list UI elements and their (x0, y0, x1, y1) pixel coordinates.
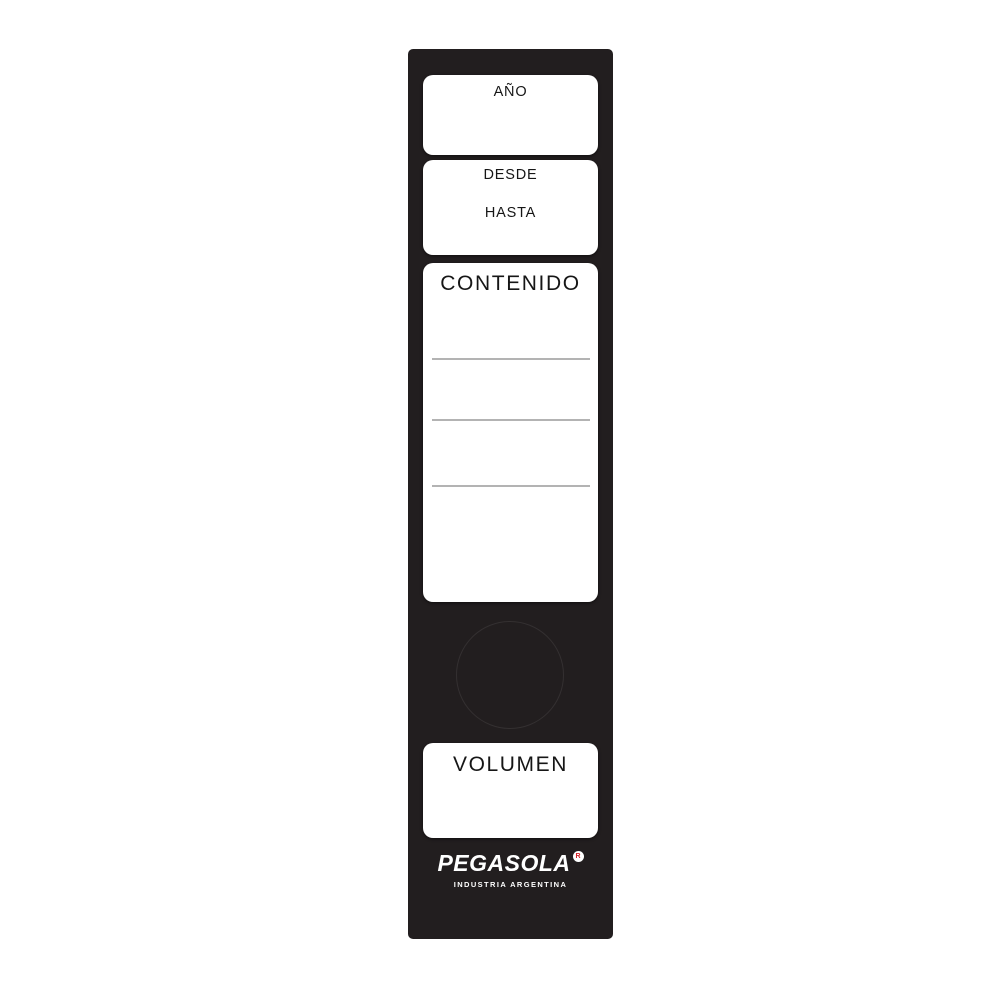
brand-name-row: PEGASOLA R (437, 852, 583, 875)
writing-line (432, 358, 590, 360)
registered-trademark-icon: R (573, 851, 584, 862)
year-label: AÑO (423, 84, 598, 100)
brand-block: PEGASOLA R INDUSTRIA ARGENTINA (408, 852, 613, 889)
to-label: HASTA (423, 205, 598, 221)
date-range-field-panel: DESDE HASTA (423, 160, 598, 255)
binder-spine-label: AÑO DESDE HASTA CONTENIDO VOLUMEN PEGASO… (408, 49, 613, 939)
page: AÑO DESDE HASTA CONTENIDO VOLUMEN PEGASO… (0, 0, 1000, 1000)
volume-field-panel: VOLUMEN (423, 743, 598, 838)
volume-label: VOLUMEN (423, 753, 598, 777)
brand-tagline: INDUSTRIA ARGENTINA (408, 880, 613, 889)
content-label: CONTENIDO (423, 272, 598, 296)
year-field-panel: AÑO (423, 75, 598, 155)
finger-hole-circle (456, 621, 564, 729)
writing-line (432, 419, 590, 421)
writing-line (432, 485, 590, 487)
from-label: DESDE (423, 167, 598, 183)
brand-name: PEGASOLA (437, 852, 570, 875)
content-field-panel: CONTENIDO (423, 263, 598, 602)
